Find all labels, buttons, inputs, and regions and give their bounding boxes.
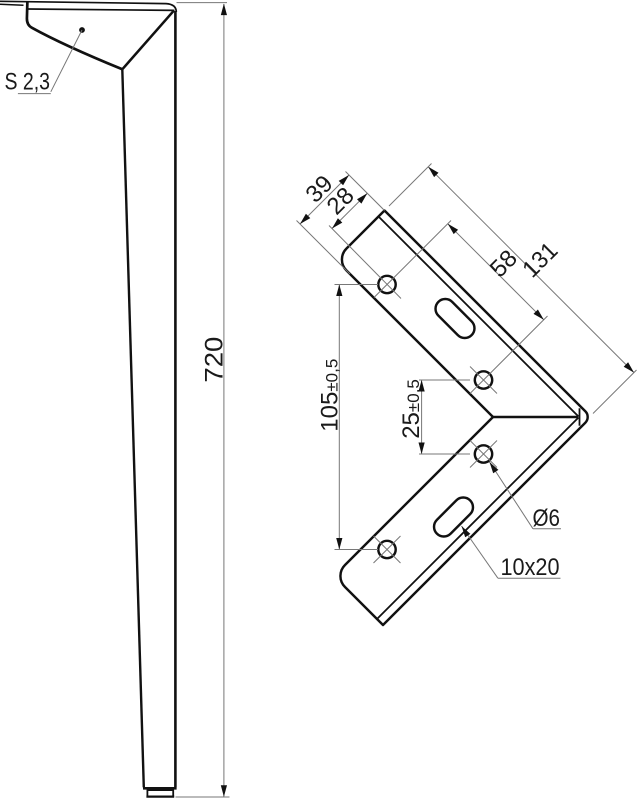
svg-text:Ø6: Ø6 — [533, 505, 561, 532]
svg-text:720: 720 — [200, 337, 228, 383]
svg-text:10x20: 10x20 — [501, 554, 560, 581]
svg-text:S 2,3: S 2,3 — [5, 69, 51, 96]
